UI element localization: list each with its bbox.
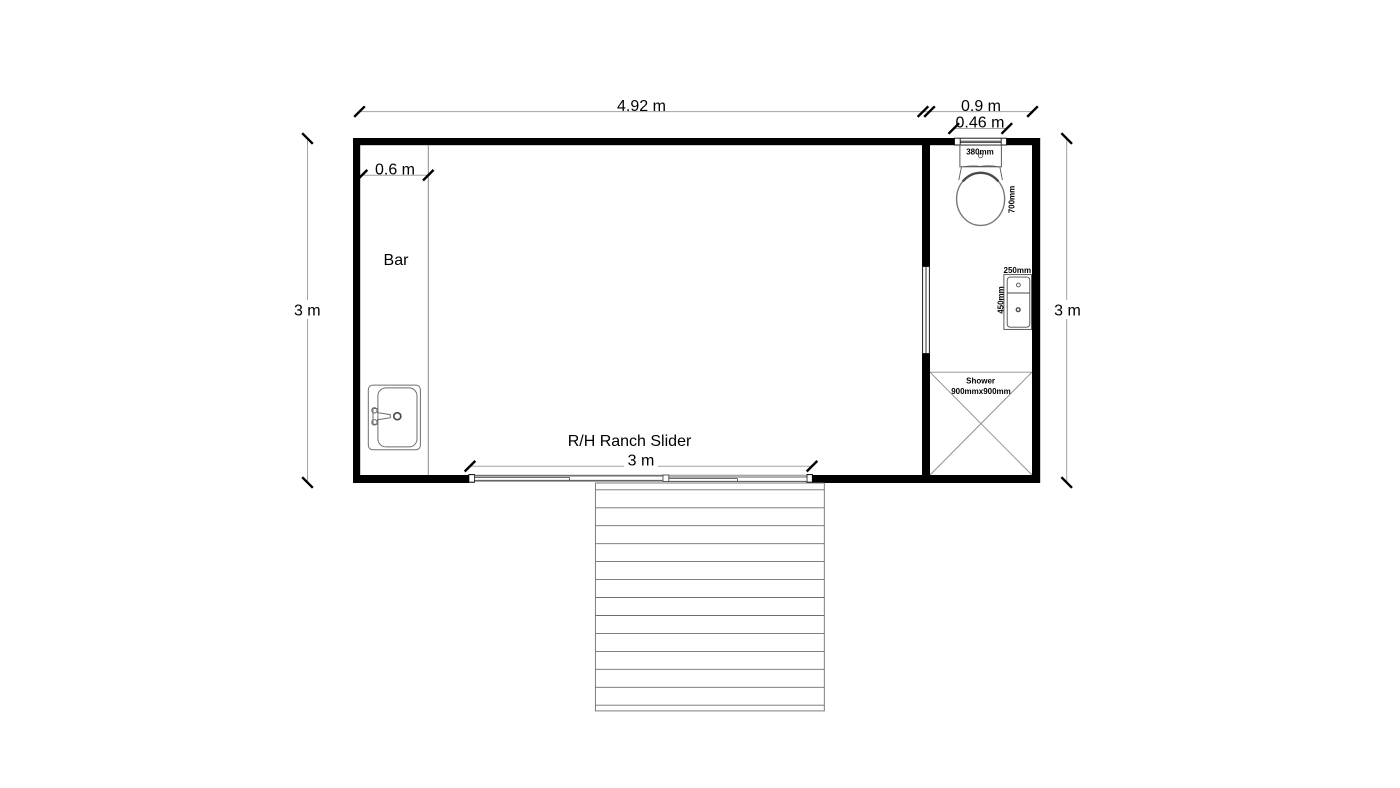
svg-text:R/H Ranch Slider: R/H Ranch Slider (568, 433, 692, 450)
svg-text:3 m: 3 m (628, 453, 655, 470)
svg-text:250mm: 250mm (1004, 266, 1032, 275)
svg-text:0.46 m: 0.46 m (956, 114, 1005, 131)
svg-text:900mmx900mm: 900mmx900mm (951, 387, 1011, 396)
svg-text:0.9 m: 0.9 m (961, 98, 1001, 115)
svg-text:380mm: 380mm (966, 147, 994, 156)
svg-text:700mm: 700mm (1008, 186, 1017, 214)
svg-text:Shower: Shower (966, 377, 995, 386)
svg-text:3 m: 3 m (294, 303, 321, 320)
svg-text:4.92 m: 4.92 m (617, 98, 666, 115)
svg-text:450mm: 450mm (996, 286, 1005, 314)
svg-text:Bar: Bar (384, 252, 410, 269)
svg-text:3 m: 3 m (1054, 303, 1081, 320)
svg-text:0.6 m: 0.6 m (375, 162, 415, 179)
